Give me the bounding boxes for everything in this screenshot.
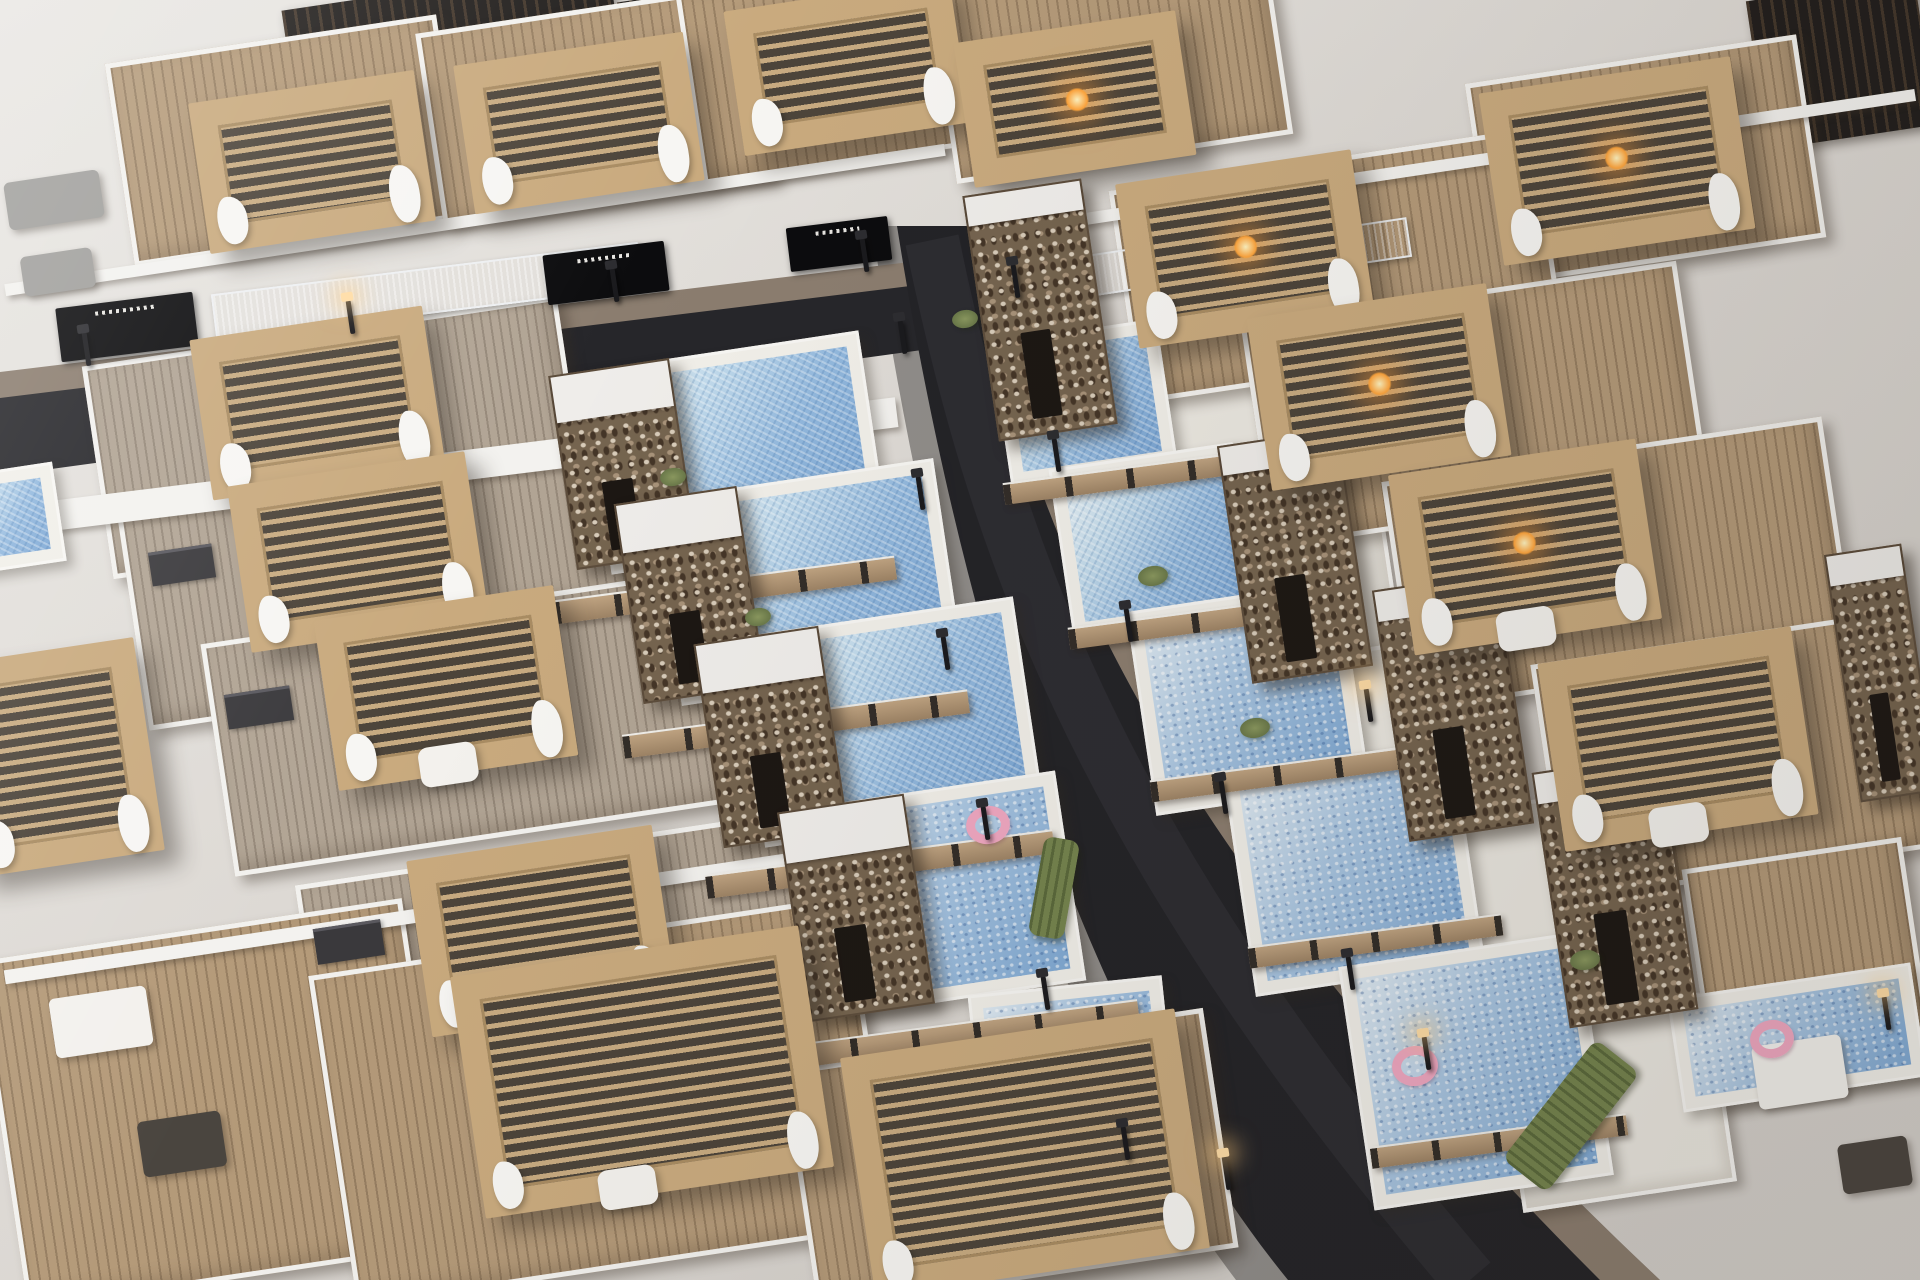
- curtain: [1768, 756, 1806, 818]
- curtain: [1276, 431, 1313, 483]
- curtain: [479, 155, 516, 207]
- dining-table: [417, 740, 480, 788]
- lamp-head: [1340, 947, 1353, 958]
- lamp-head: [1876, 987, 1889, 998]
- lamp-head: [604, 259, 617, 270]
- curtain: [1143, 289, 1180, 341]
- dining-table: [1647, 801, 1710, 849]
- lamp-head: [1046, 429, 1059, 440]
- fire-pit: [1603, 145, 1630, 172]
- lamp-head: [854, 229, 867, 240]
- curtain: [114, 792, 152, 854]
- fire-pit: [1511, 530, 1538, 557]
- address-sign: [95, 305, 156, 316]
- curtain: [214, 194, 251, 246]
- curtain: [1461, 398, 1499, 460]
- lamp-head: [1216, 1147, 1229, 1158]
- curtain: [0, 818, 18, 870]
- curtain: [1612, 561, 1650, 623]
- dining-table: [1495, 605, 1558, 653]
- curtain: [784, 1109, 822, 1171]
- curtain: [880, 1238, 917, 1280]
- lamp-head: [1005, 255, 1018, 266]
- curtain: [1705, 171, 1743, 233]
- curtain: [528, 698, 566, 760]
- lamp-head: [76, 323, 89, 334]
- fire-pit: [1232, 234, 1259, 261]
- curtain: [386, 163, 424, 225]
- address-sign: [815, 226, 860, 235]
- curtain: [343, 731, 380, 783]
- pergola: [1537, 626, 1818, 852]
- pergola: [1479, 56, 1756, 266]
- dining-table: [596, 1163, 659, 1211]
- curtain: [490, 1159, 527, 1211]
- lamp-head: [1213, 771, 1226, 782]
- curtain: [654, 122, 692, 184]
- curtain: [749, 96, 786, 148]
- lamp-head: [935, 627, 948, 638]
- pergola: [450, 925, 834, 1218]
- lamp-head: [910, 467, 923, 478]
- pergola: [314, 585, 579, 791]
- curtain: [1419, 596, 1456, 648]
- curtain: [1569, 792, 1606, 844]
- lamp-head: [975, 797, 988, 808]
- lamp-head: [1358, 679, 1371, 690]
- aerial-villa-development-render: Bird's-eye architectural rendering of ro…: [0, 0, 1920, 1280]
- pool-water: [0, 478, 51, 563]
- lamp-head: [892, 311, 905, 322]
- lamp-head: [1115, 1117, 1128, 1128]
- curtain: [256, 593, 293, 645]
- fire-pit: [1366, 371, 1393, 398]
- curtain: [1160, 1190, 1198, 1252]
- curtain: [920, 65, 958, 127]
- fire-pit: [1063, 86, 1090, 113]
- curtain: [1508, 206, 1545, 258]
- pergola: [1246, 283, 1511, 491]
- lamp-head: [1416, 1027, 1429, 1038]
- pergola: [1388, 439, 1662, 656]
- lamp-head: [340, 291, 353, 302]
- pergola: [840, 1008, 1210, 1280]
- lamp-head: [1035, 967, 1048, 978]
- outdoor-furniture: [1837, 1135, 1914, 1195]
- lamp-head: [1118, 599, 1131, 610]
